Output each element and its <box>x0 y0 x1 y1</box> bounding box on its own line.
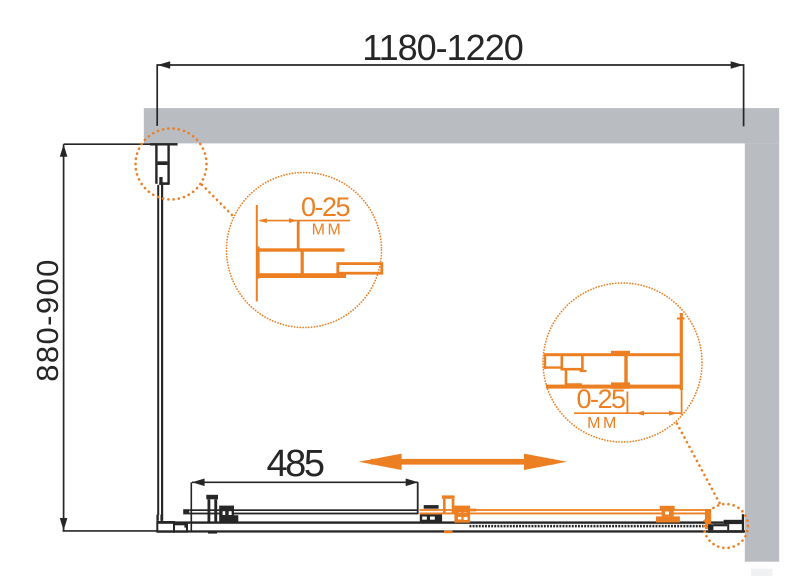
svg-text:0-25: 0-25 <box>301 192 350 222</box>
svg-text:MM: MM <box>312 222 344 239</box>
svg-text:1180-1220: 1180-1220 <box>362 27 523 68</box>
svg-text:880-900: 880-900 <box>30 258 65 382</box>
svg-text:485: 485 <box>267 443 324 485</box>
svg-text:MM: MM <box>587 415 619 432</box>
svg-text:0-25: 0-25 <box>576 384 625 414</box>
